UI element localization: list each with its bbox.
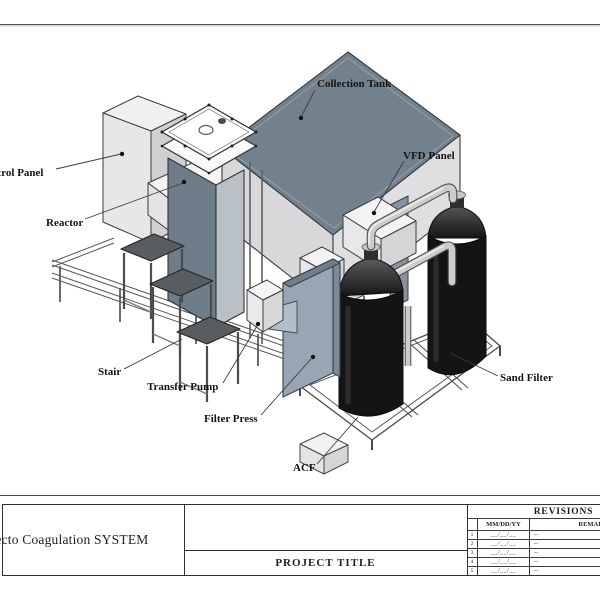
project-title: PROJECT TITLE	[275, 557, 375, 569]
label-reactor: Reactor	[46, 217, 83, 229]
title-block-empty-cell	[184, 505, 467, 550]
revisions-title: REVISIONS	[534, 507, 593, 517]
title-block: Electo Coagulation SYSTEM PROJECT TITLE …	[2, 504, 600, 576]
label-filter-press: Filter Press	[204, 413, 258, 425]
sand-filter-cylinder	[428, 191, 486, 375]
revision-row: 5 __/__/__ --	[467, 567, 600, 575]
rev-date-header: MM/DD/YY	[478, 519, 530, 529]
drawing-sheet: Control Panel Reactor Collection Tank VF…	[0, 0, 600, 600]
flange-vent	[218, 118, 225, 123]
flange-center-hole	[199, 126, 213, 135]
isometric-drawing: Control Panel Reactor Collection Tank VF…	[0, 0, 600, 495]
revisions-table: REVISIONS MM/DD/YY REMARKS 1 __/__/__ --…	[467, 505, 600, 575]
system-title: Electo Coagulation SYSTEM	[0, 532, 148, 548]
rev-remarks-header: REMARKS	[530, 519, 600, 529]
label-collection-tank: Collection Tank	[317, 78, 392, 90]
revisions-header-band: REVISIONS	[467, 505, 600, 519]
revision-row: 4 __/__/__ --	[467, 558, 600, 567]
revision-row: 1 __/__/__ --	[467, 531, 600, 540]
rev-no-header	[467, 519, 478, 529]
label-transfer-pump: Transfer Pump	[147, 381, 218, 393]
label-control-panel: Control Panel	[0, 167, 44, 179]
revision-row: 2 __/__/__ --	[467, 540, 600, 549]
system-title-cell: Electo Coagulation SYSTEM	[3, 505, 185, 575]
label-stair: Stair	[98, 366, 121, 378]
label-sand-filter: Sand Filter	[500, 372, 553, 384]
project-title-cell: PROJECT TITLE	[184, 505, 468, 575]
sheet-bottom-border	[0, 495, 600, 496]
label-vfd-panel: VFD Panel	[403, 150, 455, 162]
revision-row: 3 __/__/__ --	[467, 549, 600, 558]
label-acf: ACF	[293, 462, 316, 474]
revisions-column-headers: MM/DD/YY REMARKS	[467, 519, 600, 530]
sheet-top-border	[0, 24, 600, 25]
filter-press	[263, 259, 341, 397]
